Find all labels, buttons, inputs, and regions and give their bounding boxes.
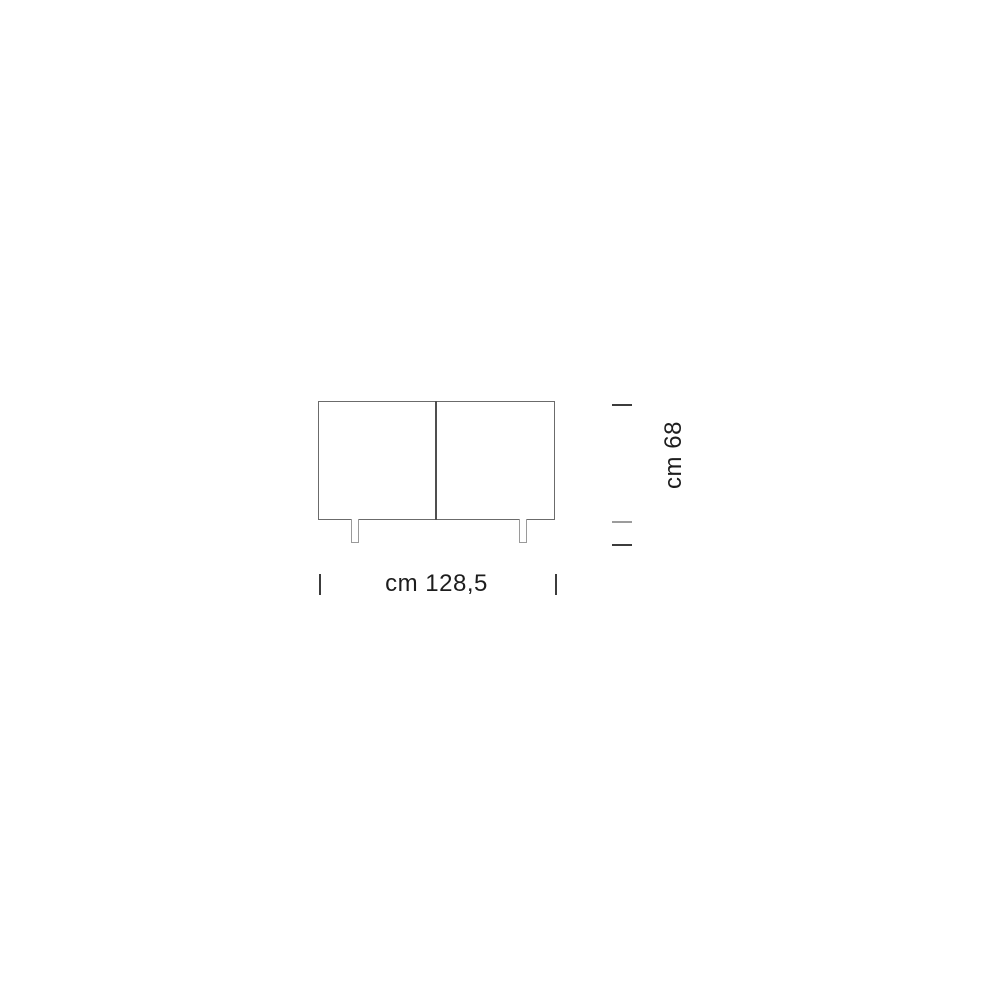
height-dimension-label: cm 68 — [659, 375, 689, 535]
height-dimension-tick-cabinet-bottom — [612, 521, 632, 523]
cabinet-leg-left — [351, 519, 359, 543]
width-dimension-label: cm 128,5 — [318, 570, 555, 598]
height-dimension-tick-top — [612, 404, 632, 406]
cabinet-door-divider-line — [435, 401, 437, 520]
cabinet-leg-right — [519, 519, 527, 543]
height-dimension-tick-floor — [612, 544, 632, 546]
furniture-dimension-diagram: cm 68 cm 128,5 — [0, 0, 1000, 1000]
width-dimension-tick-right — [555, 574, 557, 595]
